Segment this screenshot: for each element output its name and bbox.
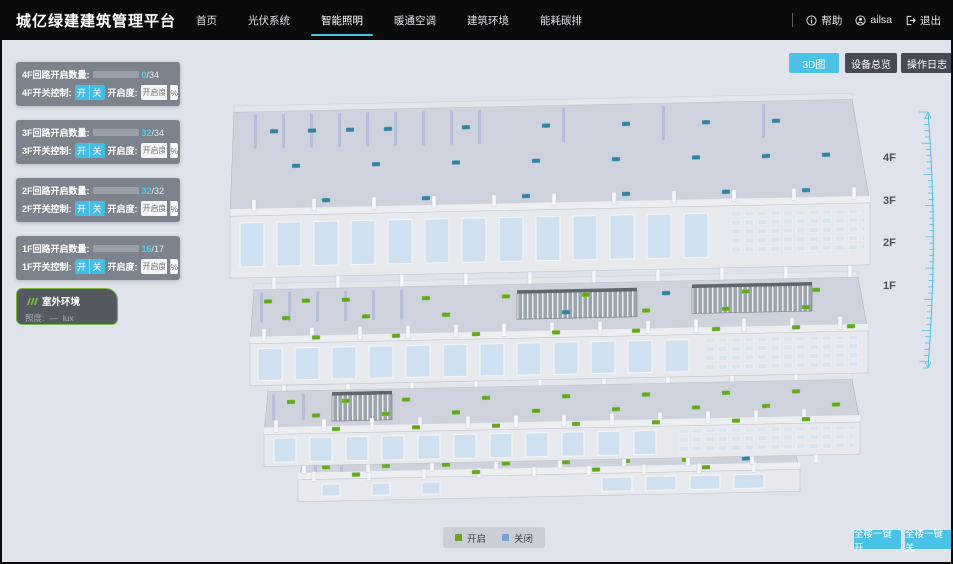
nav-hvac[interactable]: 暖通空调	[392, 9, 438, 32]
nav-energy-carbon[interactable]: 能耗碳排	[538, 9, 584, 32]
floor-panel-2f: 2F回路开启数量: 32/32 2F开关控制: 开 关 开启度: %	[16, 178, 180, 222]
user-icon	[855, 15, 866, 26]
nav-smart-lighting[interactable]: 智能照明	[319, 9, 365, 32]
floor-label-1f[interactable]: 1F	[883, 280, 907, 292]
dim-unit-button[interactable]: %	[170, 143, 179, 158]
floor-panel-1f: 1F回路开启数量: 16/17 1F开关控制: 开 关 开启度: %	[16, 236, 180, 280]
illuminance-unit: lux	[63, 313, 74, 323]
circuit-progress-bar	[93, 245, 139, 252]
device-overview-button[interactable]: 设备总览	[845, 53, 897, 73]
dim-label: 开启度:	[108, 202, 138, 215]
illuminance-value: —	[49, 313, 58, 323]
circuit-count-label: 2F回路开启数量:	[22, 184, 90, 197]
circuit-progress-bar	[93, 71, 139, 78]
nav-building-env[interactable]: 建筑环境	[465, 9, 511, 32]
user-menu[interactable]: ailsa	[855, 14, 892, 26]
nav-home[interactable]: 首页	[194, 9, 219, 32]
env-slashes-icon	[25, 297, 38, 306]
all-floors-off-button[interactable]: 全楼一键关	[905, 530, 952, 549]
switch-group: 开 关	[75, 143, 105, 158]
legend-on-item: 开启	[455, 531, 486, 545]
outdoor-title: 室外环境	[42, 294, 80, 308]
info-icon	[806, 15, 817, 26]
switch-control-label: 3F开关控制:	[22, 144, 72, 157]
circuit-count-value: 16/17	[142, 244, 165, 254]
logout-icon	[905, 15, 916, 26]
app-window: 城亿绿建建筑管理平台 首页 光伏系统 智能照明 暖通空调 建筑环境 能耗碳排 帮…	[0, 0, 953, 564]
legend-on-swatch	[455, 534, 462, 541]
circuit-count-value: 32/34	[142, 128, 165, 138]
switch-control-label: 1F开关控制:	[22, 260, 72, 273]
operation-log-button[interactable]: 操作日志	[901, 53, 953, 73]
switch-control-label: 2F开关控制:	[22, 202, 72, 215]
switch-off-button[interactable]: 关	[90, 259, 105, 274]
switch-off-button[interactable]: 关	[90, 201, 105, 216]
circuit-progress-bar	[93, 129, 139, 136]
help-label: 帮助	[821, 13, 842, 28]
header-right: 帮助 ailsa 退出	[792, 0, 941, 40]
legend-off-item: 关闭	[502, 531, 533, 545]
username: ailsa	[870, 14, 892, 26]
circuit-count-label: 4F回路开启数量:	[22, 68, 90, 81]
legend-off-label: 关闭	[514, 531, 533, 545]
switch-off-button[interactable]: 关	[90, 143, 105, 158]
circuit-count-value: 32/32	[142, 186, 165, 196]
logout-label: 退出	[920, 13, 941, 28]
circuit-progress-bar	[93, 187, 139, 194]
floor-label-3f[interactable]: 3F	[883, 195, 907, 207]
switch-group: 开 关	[75, 201, 105, 216]
floor-panel-4f: 4F回路开启数量: 0/34 4F开关控制: 开 关 开启度: %	[16, 62, 180, 106]
dim-input[interactable]	[141, 143, 167, 158]
dim-input[interactable]	[141, 85, 167, 100]
switch-on-button[interactable]: 开	[75, 259, 90, 274]
dim-label: 开启度:	[108, 260, 138, 273]
building-model	[230, 93, 870, 503]
header-divider	[792, 13, 793, 27]
switch-on-button[interactable]: 开	[75, 85, 90, 100]
dim-unit-button[interactable]: %	[170, 85, 179, 100]
circuit-count-label: 3F回路开启数量:	[22, 126, 90, 139]
outdoor-env-panel: 室外环境 照度: — lux	[16, 288, 118, 325]
dim-label: 开启度:	[108, 86, 138, 99]
nav-pv-system[interactable]: 光伏系统	[246, 9, 292, 32]
zoom-ruler[interactable]	[919, 112, 934, 368]
all-floors-on-button[interactable]: 全楼一键开	[854, 530, 901, 549]
dim-label: 开启度:	[108, 144, 138, 157]
switch-on-button[interactable]: 开	[75, 143, 90, 158]
floor-label-4f[interactable]: 4F	[883, 152, 907, 164]
dim-input[interactable]	[141, 201, 167, 216]
dim-unit-button[interactable]: %	[170, 259, 179, 274]
dim-unit-button[interactable]: %	[170, 201, 179, 216]
switch-control-label: 4F开关控制:	[22, 86, 72, 99]
circuit-count-label: 1F回路开启数量:	[22, 242, 90, 255]
illuminance-label: 照度:	[25, 312, 44, 324]
switch-group: 开 关	[75, 85, 105, 100]
help-button[interactable]: 帮助	[806, 13, 842, 28]
main-nav: 首页 光伏系统 智能照明 暖通空调 建筑环境 能耗碳排	[194, 0, 584, 40]
legend-on-label: 开启	[467, 531, 486, 545]
switch-on-button[interactable]: 开	[75, 201, 90, 216]
switch-group: 开 关	[75, 259, 105, 274]
floor-label-2f[interactable]: 2F	[883, 237, 907, 249]
view-3d-button[interactable]: 3D图	[789, 53, 839, 73]
floor-panel-3f: 3F回路开启数量: 32/34 3F开关控制: 开 关 开启度: %	[16, 120, 180, 164]
circuit-count-value: 0/34	[142, 70, 160, 80]
dim-input[interactable]	[141, 259, 167, 274]
light-status-legend: 开启 关闭	[443, 527, 545, 548]
logout-button[interactable]: 退出	[905, 13, 941, 28]
switch-off-button[interactable]: 关	[90, 85, 105, 100]
app-title: 城亿绿建建筑管理平台	[16, 10, 176, 31]
legend-off-swatch	[502, 534, 509, 541]
illuminance-row: 照度: — lux	[25, 312, 109, 324]
top-bar: 城亿绿建建筑管理平台 首页 光伏系统 智能照明 暖通空调 建筑环境 能耗碳排 帮…	[2, 0, 951, 40]
